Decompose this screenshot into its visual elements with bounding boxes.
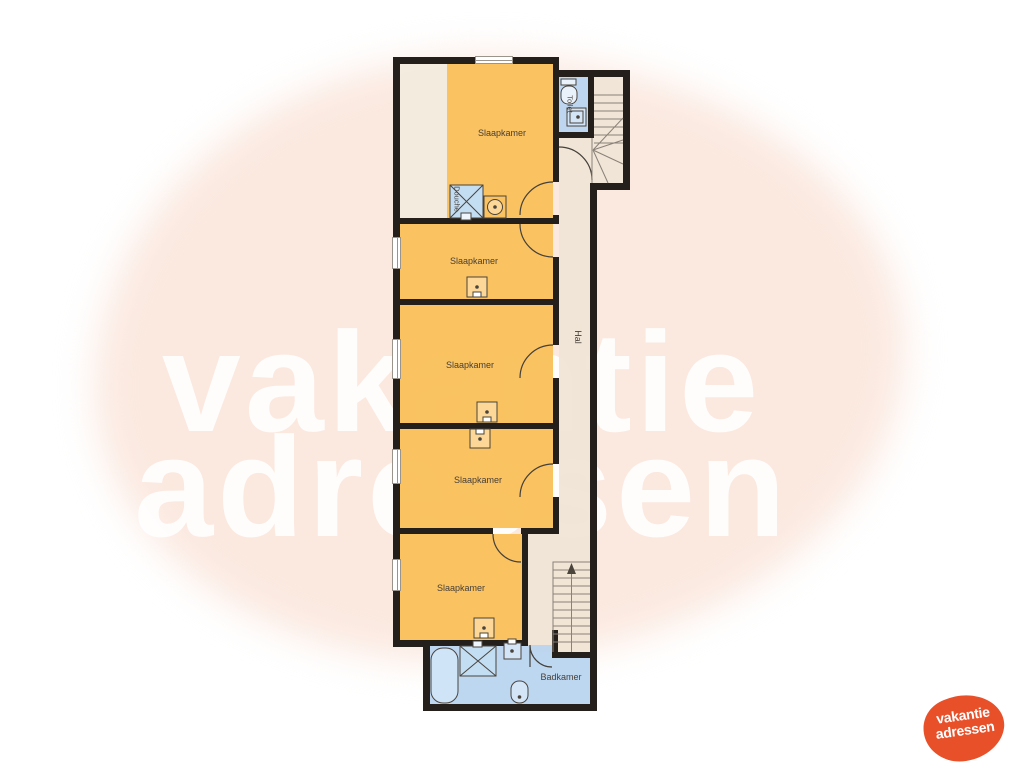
- bathroom-floor-left: [430, 645, 552, 704]
- wall-hall-a: [553, 257, 559, 345]
- wall-stairblock-top: [553, 70, 630, 77]
- wall-bottom: [423, 704, 597, 711]
- bedroom3-label: Slaapkamer: [446, 360, 494, 370]
- wall-stairblock-bottom: [590, 183, 630, 190]
- window-bedroom2: [392, 237, 401, 269]
- stairs-top-floor: [594, 77, 623, 183]
- wall-hall-c: [553, 497, 559, 534]
- window-mid-line: [397, 340, 398, 378]
- hall-label: Hal: [573, 330, 583, 344]
- bathroom-label: Badkamer: [540, 672, 581, 682]
- bedroom1-label: Slaapkamer: [478, 128, 526, 138]
- wall-bedroom5-right: [522, 534, 528, 640]
- wall-stairs-bottom: [552, 652, 597, 658]
- shower-label: Douche: [453, 186, 462, 212]
- stairs-bottom-floor: [553, 562, 590, 652]
- bedroom2-label: Slaapkamer: [450, 256, 498, 266]
- wall-bedroom1-bottom: [400, 218, 553, 224]
- wall-bedroom2-bottom: [400, 299, 553, 305]
- window-mid-line: [397, 450, 398, 483]
- wall-bedroom1-right: [553, 63, 559, 182]
- wall-bedroom4-bottom-a: [400, 528, 493, 534]
- bedroom1-closet-area: [400, 63, 447, 218]
- wall-toilet-bottom: [553, 132, 594, 138]
- wall-stairblock-right: [623, 70, 630, 190]
- wall-bedroom1-right-stub: [553, 215, 559, 224]
- window-bedroom1-top: [475, 56, 513, 64]
- wall-bedroom3-bottom: [400, 423, 553, 429]
- wall-hall-b: [553, 378, 559, 464]
- bedroom5-label: Slaapkamer: [437, 583, 485, 593]
- bedroom1-floor: [447, 63, 553, 218]
- wall-bathroom-left: [423, 640, 430, 711]
- wall-toilet-stairs-divider: [588, 77, 594, 132]
- window-bedroom3: [392, 339, 401, 379]
- window-bedroom4: [392, 449, 401, 484]
- window-mid-line: [397, 238, 398, 268]
- wall-bedroom5-bottom: [428, 640, 528, 646]
- floor-plan: Slaapkamer Slaapkamer Slaapkamer Slaapka…: [0, 0, 1024, 768]
- window-mid-line: [397, 560, 398, 590]
- vakantieadressen-logo: vakantie adressen: [916, 692, 1016, 766]
- window-bedroom5: [392, 559, 401, 591]
- wall-right: [590, 183, 597, 711]
- bedroom4-label: Slaapkamer: [454, 475, 502, 485]
- toilet-label: Toilet: [566, 95, 575, 113]
- window-mid-line: [476, 60, 512, 61]
